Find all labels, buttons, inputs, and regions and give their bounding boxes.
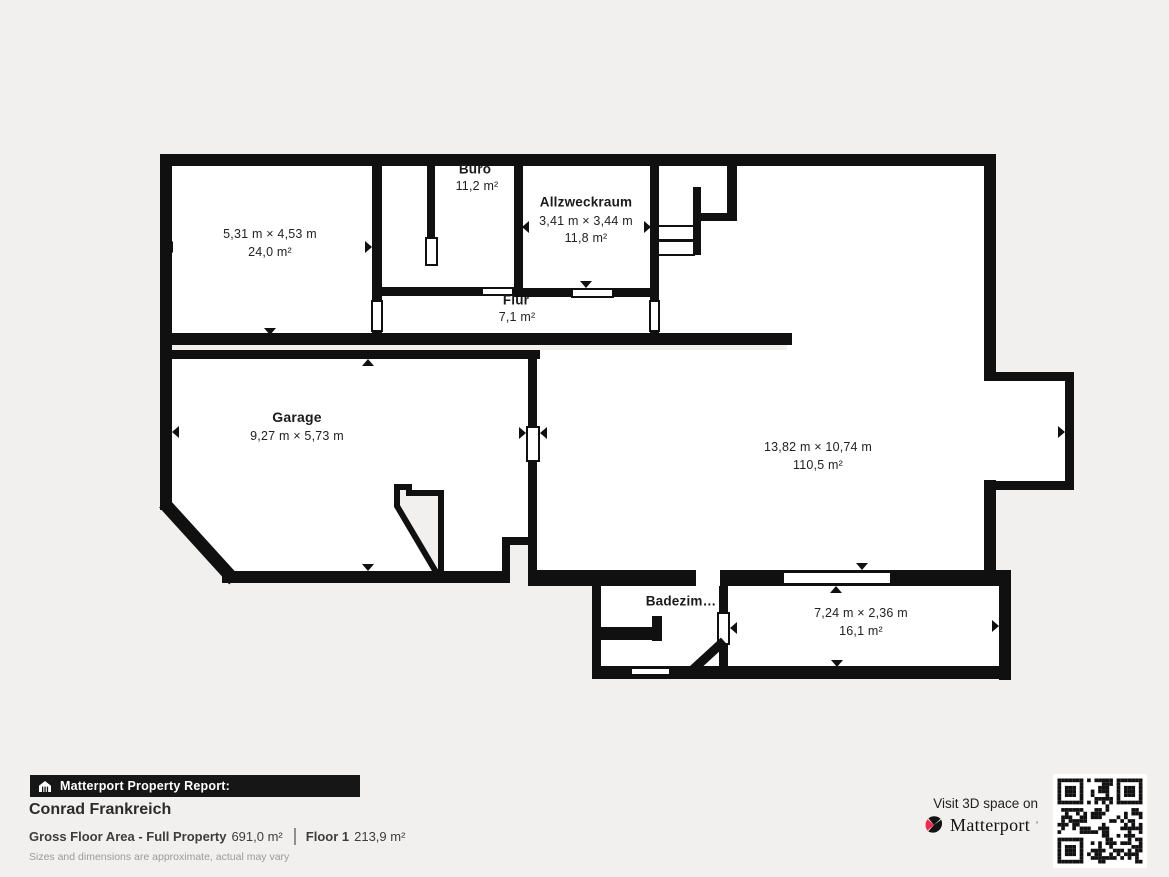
house-icon [38, 780, 52, 793]
wall-garage-bigroom-lower [528, 460, 537, 583]
disclaimer-text: Sizes and dimensions are approximate, ac… [29, 851, 289, 863]
area-stats: Gross Floor Area - Full Property 691,0 m… [29, 828, 414, 845]
room-area: 110,5 m² [793, 458, 843, 472]
visit-text: Visit 3D space on [933, 796, 1038, 811]
gfa-label: Gross Floor Area - Full Property [29, 829, 226, 844]
badezimmer-entrance [696, 570, 720, 586]
floor-label: Floor 1 [306, 829, 349, 844]
wall-buero-allzweck-divider [514, 154, 523, 294]
room-dims: 7,24 m × 2,36 m [814, 606, 908, 620]
stair-tread [657, 225, 695, 241]
wall-bad-right-upper [719, 586, 728, 614]
wall-notch-top [502, 537, 537, 545]
room-area: 11,2 m² [456, 179, 499, 193]
wall-right-lower [984, 480, 996, 584]
wall-left-lower [160, 350, 172, 510]
wall-bad-inner-v [652, 616, 662, 641]
wall-bad-left [592, 570, 601, 678]
room-dims: 3,41 m × 3,44 m [539, 214, 633, 228]
wall-bump-top [984, 372, 1074, 381]
wall-garage-top [160, 350, 540, 359]
wall-room16-right [999, 570, 1011, 680]
room-area: 11,8 m² [565, 231, 608, 245]
wall-left-upper [160, 154, 172, 350]
floor-bump-out [988, 378, 1068, 482]
room-dims: 5,31 m × 4,53 m [223, 227, 317, 241]
allzweck-window [571, 288, 614, 298]
wall-right-upper [984, 154, 996, 380]
wall-mid-band [160, 333, 792, 345]
garage-door [526, 426, 540, 462]
wall-garage-bigroom-upper [528, 350, 537, 427]
floorplan: 5,31 m × 4,53 m 24,0 m² Büro 11,2 m² All… [0, 0, 1169, 877]
buero-door [425, 237, 438, 266]
room-name-buero: Büro [459, 162, 491, 177]
gfa-value: 691,0 m² [231, 829, 282, 844]
room-name-badezimmer: Badezim… [646, 594, 717, 609]
report-label: Matterport Property Report: [60, 779, 230, 793]
stair-tread [657, 240, 695, 256]
wall-stairs-right [727, 154, 737, 220]
room-area: 24,0 m² [248, 245, 292, 259]
matterport-brand: Matterport’ [923, 814, 1038, 836]
wall-top [160, 154, 996, 166]
trademark-mark: ’ [1036, 820, 1038, 830]
report-header-bar: Matterport Property Report: [30, 775, 360, 797]
badezimmer-window [630, 667, 671, 676]
room16-door [717, 612, 730, 645]
room16-window [782, 571, 892, 585]
visit-3d-cta: Visit 3D space on [933, 795, 1038, 813]
wall-garage-bottom [222, 571, 504, 583]
qr-code [1053, 774, 1147, 868]
room-area: 16,1 m² [839, 624, 883, 638]
stats-divider [294, 828, 296, 845]
flur-right-opening [649, 300, 660, 332]
wall-buero-partition [427, 154, 435, 239]
room-name-garage: Garage [272, 409, 321, 425]
tlroom-flur-opening [371, 300, 383, 332]
floor-value: 213,9 m² [354, 829, 405, 844]
wall-bad-right-lower [719, 641, 728, 671]
wall-bump-right [1065, 372, 1074, 490]
room-dims: 13,82 m × 10,74 m [764, 440, 872, 454]
notch-void [509, 544, 529, 583]
matterport-logo-text: Matterport [950, 815, 1030, 836]
room-name-flur: Flur [503, 293, 529, 308]
matterport-logo-icon [923, 814, 945, 836]
room-dims: 9,27 m × 5,73 m [250, 429, 344, 443]
wall-bump-bottom [984, 481, 1074, 490]
room-name-allzweckraum: Allzweckraum [540, 195, 632, 210]
property-name: Conrad Frankreich [29, 801, 171, 819]
room-area: 7,1 m² [499, 310, 536, 324]
